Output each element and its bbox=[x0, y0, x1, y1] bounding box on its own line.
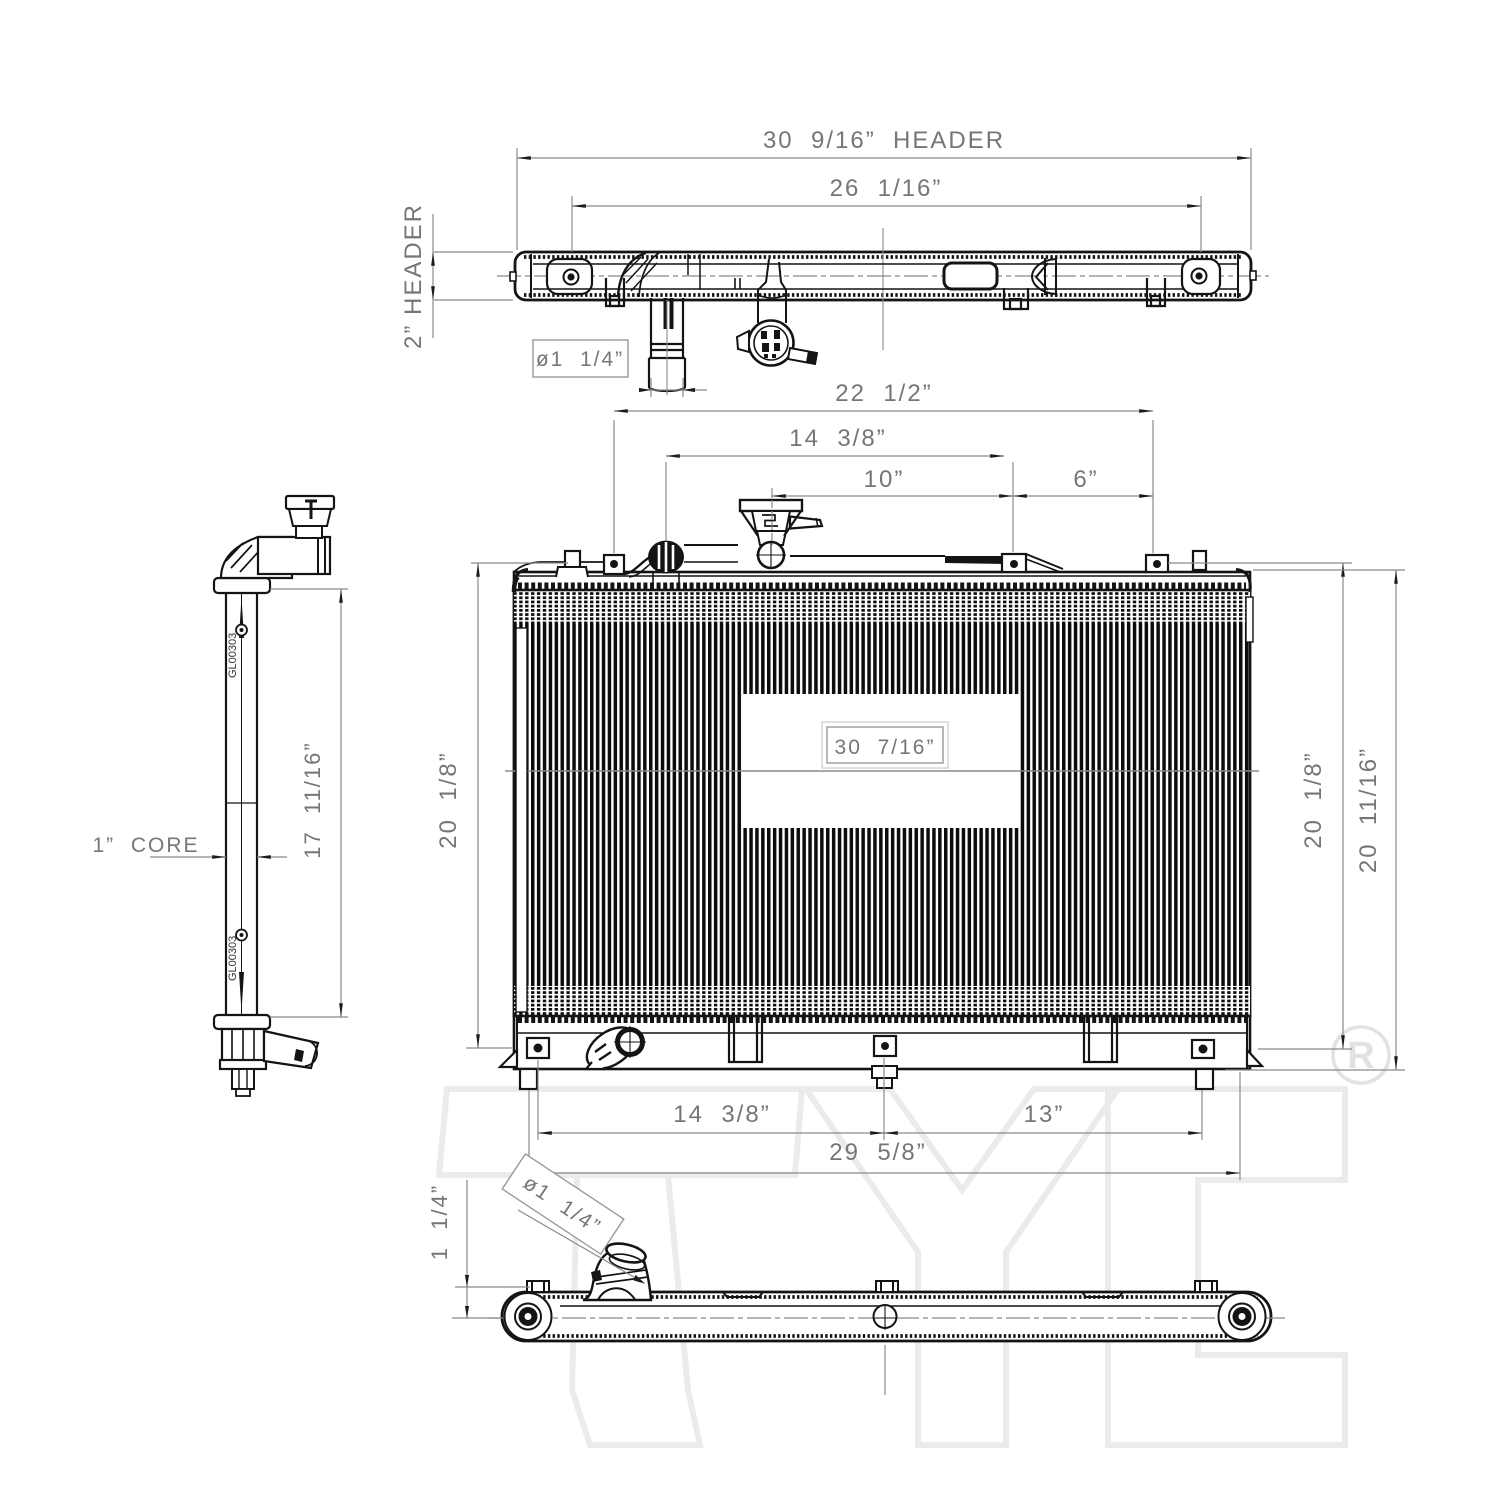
svg-text:1 1/4”: 1 1/4” bbox=[427, 1184, 452, 1260]
svg-text:17 11/16”: 17 11/16” bbox=[300, 741, 325, 858]
svg-text:14 3/8”: 14 3/8” bbox=[789, 425, 886, 452]
svg-text:30 9/16” HEADER: 30 9/16” HEADER bbox=[763, 127, 1005, 154]
svg-text:22 1/2”: 22 1/2” bbox=[835, 380, 932, 407]
svg-text:ø1 1/4”: ø1 1/4” bbox=[536, 348, 624, 371]
svg-text:26 1/16”: 26 1/16” bbox=[830, 175, 943, 202]
svg-text:29 5/8”: 29 5/8” bbox=[829, 1139, 926, 1166]
svg-text:30 7/16”: 30 7/16” bbox=[835, 736, 936, 759]
svg-text:10”: 10” bbox=[864, 466, 905, 493]
svg-text:GL00303: GL00303 bbox=[227, 936, 239, 981]
svg-text:20 11/16”: 20 11/16” bbox=[1355, 747, 1382, 873]
svg-text:14 3/8”: 14 3/8” bbox=[673, 1101, 770, 1128]
svg-text:2” HEADER: 2” HEADER bbox=[400, 203, 427, 349]
svg-text:R: R bbox=[1347, 1035, 1374, 1077]
svg-text:1” CORE: 1” CORE bbox=[92, 834, 199, 857]
svg-text:13”: 13” bbox=[1024, 1101, 1065, 1128]
svg-text:GL00303: GL00303 bbox=[227, 633, 239, 678]
svg-text:20 1/8”: 20 1/8” bbox=[1300, 751, 1327, 848]
svg-text:6”: 6” bbox=[1073, 466, 1098, 493]
svg-text:20 1/8”: 20 1/8” bbox=[435, 751, 462, 848]
